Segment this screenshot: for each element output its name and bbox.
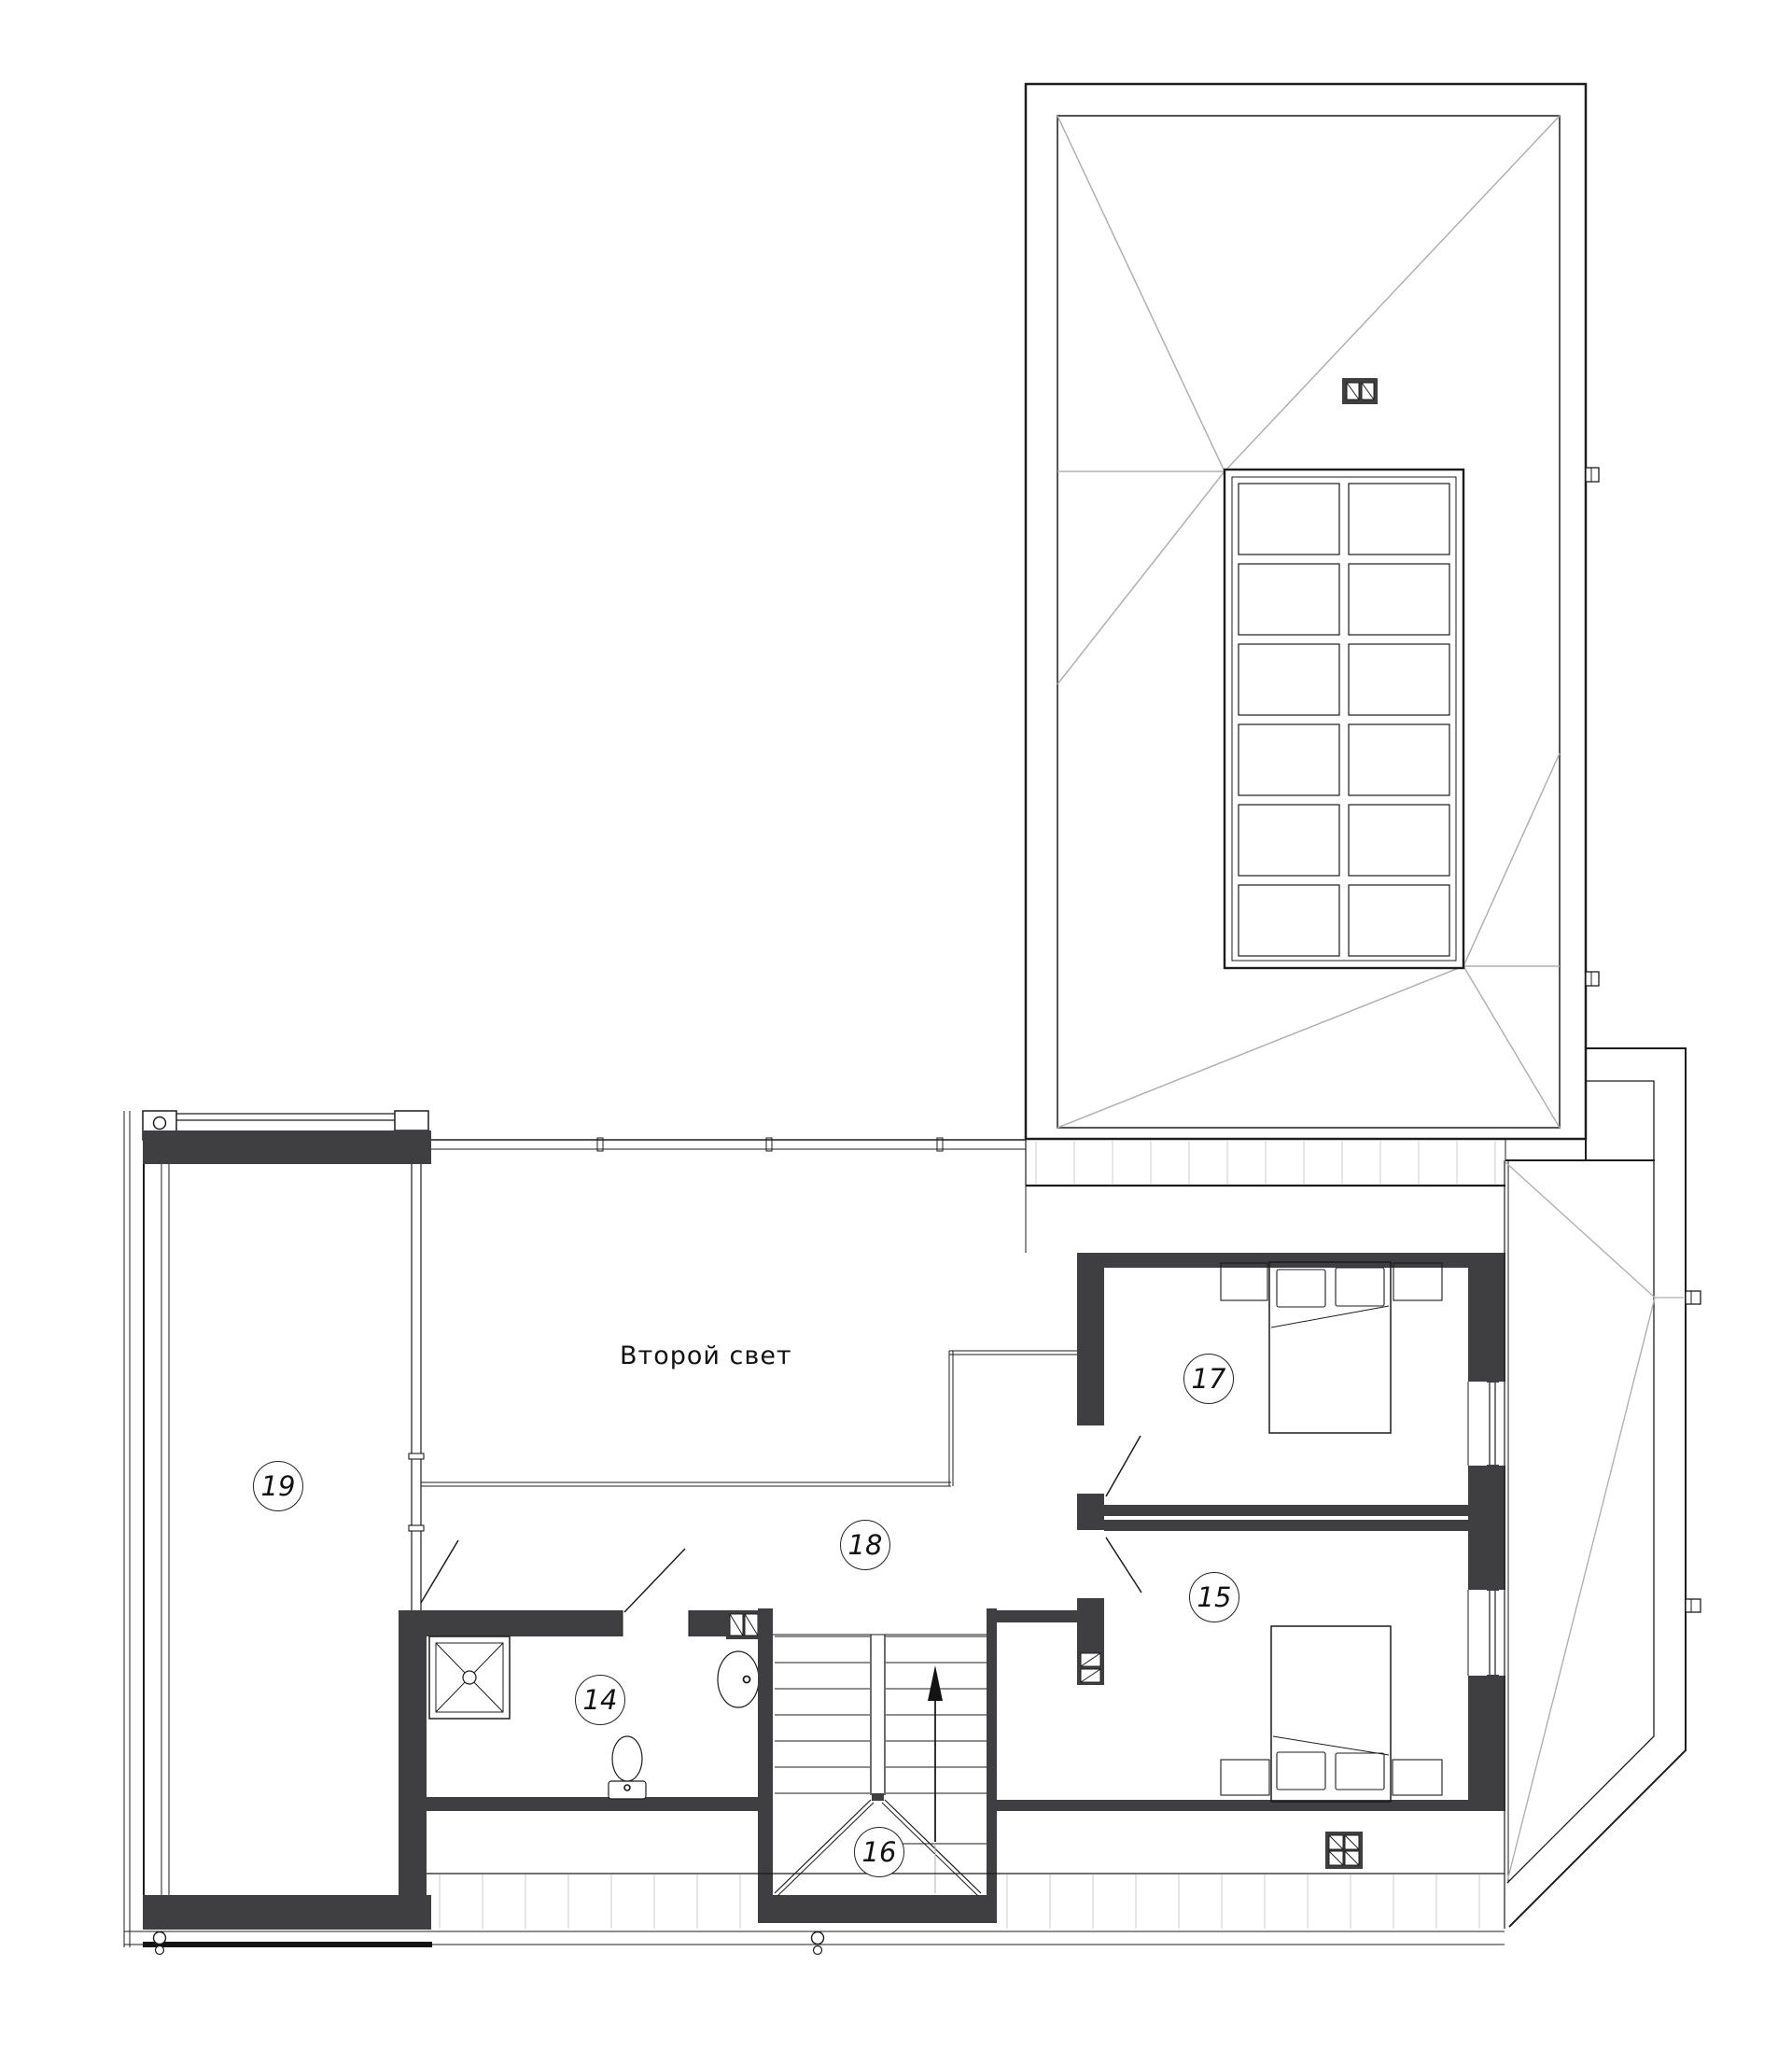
- door-swing-room15: [1106, 1537, 1141, 1593]
- stairs-up-arrow-icon: [928, 1665, 943, 1842]
- roof-hip-lines: [1505, 1162, 1684, 1881]
- roof-plan-upper: [1026, 84, 1599, 1139]
- room-label-14: 14: [575, 1675, 625, 1725]
- room-label-18: 18: [840, 1520, 890, 1570]
- bed-room17: [1269, 1262, 1391, 1433]
- nightstand: [1393, 1263, 1442, 1300]
- bed-room15: [1271, 1626, 1391, 1802]
- plan-drawing: [0, 0, 1792, 2050]
- room-label-17: 17: [1183, 1354, 1234, 1404]
- roof-hatch: [1036, 1141, 1495, 1184]
- terrace-glazing: [409, 1164, 424, 1610]
- floor-plan: Второй свет 19 14 16 18 15 17: [0, 0, 1792, 2050]
- sink: [718, 1651, 759, 1707]
- door-swing-room17: [1106, 1436, 1141, 1496]
- stair-treads: [775, 1636, 987, 1793]
- upper-eave-strip: [1026, 1139, 1505, 1253]
- roof-pipe-icon: [1586, 468, 1599, 986]
- stairs: [758, 1608, 1080, 1923]
- bathroom-door-swing: [624, 1549, 685, 1612]
- chimney-icon: [1325, 1832, 1363, 1869]
- chimney-icon: [1342, 378, 1378, 404]
- vent-shaft-icon: [1077, 1598, 1104, 1685]
- nightstand: [1393, 1760, 1442, 1795]
- nightstand: [1221, 1760, 1269, 1795]
- roof-pipe-icon: [1686, 1291, 1701, 1612]
- shower: [429, 1636, 510, 1719]
- room-label-15: 15: [1189, 1572, 1239, 1622]
- window-room17: [1468, 1378, 1499, 1469]
- skylight: [1225, 470, 1463, 968]
- toilet: [609, 1736, 646, 1799]
- room-label-19: 19: [253, 1461, 303, 1511]
- bedroom-walls: [997, 1253, 1505, 1869]
- vent-shaft-icon: [726, 1610, 761, 1639]
- terrace-door-swing: [421, 1540, 458, 1603]
- room-label-16: 16: [854, 1827, 904, 1877]
- void-outline: [421, 1351, 1077, 1486]
- nightstand: [1221, 1263, 1267, 1300]
- window-room15: [1468, 1586, 1499, 1679]
- roof-plan-right: [1505, 1048, 1701, 1929]
- void-label: Второй свет: [620, 1341, 792, 1370]
- terrace: [124, 1111, 458, 1947]
